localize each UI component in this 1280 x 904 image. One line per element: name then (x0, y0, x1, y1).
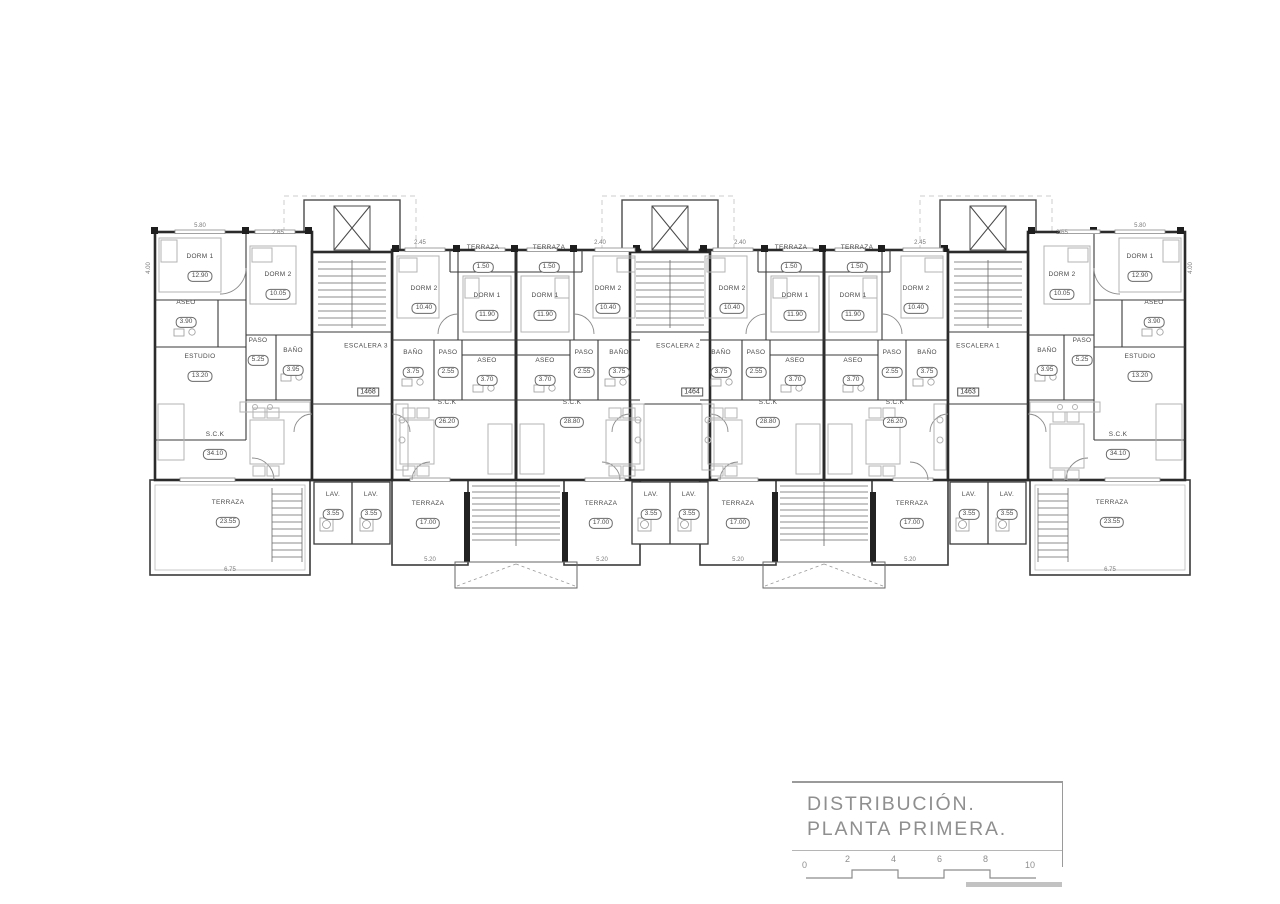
room-label: ASEO3.70 (535, 357, 556, 387)
dimension-label: 5.80 (194, 223, 206, 229)
stair-core-label: ESCALERA 1 (956, 343, 1000, 350)
room-label: DORM 111.90 (531, 292, 558, 322)
room-label: BAÑO3.75 (403, 349, 424, 379)
room-label: DORM 111.90 (473, 292, 500, 322)
floor-plan-drawing (0, 0, 1280, 904)
plan-title-line1: DISTRIBUCIÓN. (807, 792, 1062, 817)
dimension-label: 2.65 (1056, 230, 1068, 236)
scale-tick-label: 2 (845, 854, 850, 864)
room-label: ASEO3.90 (1144, 299, 1165, 329)
room-label: ASEO3.70 (785, 357, 806, 387)
room-label: BAÑO3.75 (711, 349, 732, 379)
dimension-label: 2.45 (914, 240, 926, 246)
room-label: PASO2.55 (438, 349, 459, 379)
room-label: TERRAZA23.55 (212, 499, 244, 529)
room-label: LAV.3.55 (959, 491, 980, 521)
room-label: BAÑO3.75 (917, 349, 938, 379)
unit-number-badge: 1463 (957, 388, 979, 397)
room-label: DORM 111.90 (839, 292, 866, 322)
floor-plan-sheet: DORM 112.90 DORM 210.05 ASEO3.90 PASO5.2… (0, 0, 1280, 904)
room-label: LAV.3.55 (641, 491, 662, 521)
room-label: BAÑO3.95 (1037, 347, 1058, 377)
dimension-label: 2.65 (272, 230, 284, 236)
room-label: S.C.K34.10 (203, 431, 227, 461)
room-label: ESTUDIO13.20 (1125, 353, 1156, 383)
room-label: ASEO3.70 (843, 357, 864, 387)
unit-number-badge: 1468 (357, 388, 379, 397)
room-label: DORM 210.40 (902, 285, 929, 315)
room-label: DORM 210.05 (264, 271, 291, 301)
room-label: S.C.K26.20 (883, 399, 907, 429)
room-label: LAV.3.55 (323, 491, 344, 521)
room-label: PASO2.55 (574, 349, 595, 379)
room-label: S.C.K28.80 (756, 399, 780, 429)
title-block-accent-bar (966, 882, 1062, 887)
dimension-label: 4.00 (1188, 262, 1194, 274)
room-label: TERRAZA1.50 (533, 244, 565, 274)
dimension-label: 2.40 (594, 240, 606, 246)
room-label: TERRAZA17.00 (896, 500, 928, 530)
room-label: PASO5.25 (248, 337, 269, 367)
dimension-label: 5.20 (904, 557, 916, 563)
dimension-label: 2.40 (734, 240, 746, 246)
room-label: S.C.K26.20 (435, 399, 459, 429)
scale-tick-label: 4 (891, 854, 896, 864)
room-label: BAÑO3.95 (283, 347, 304, 377)
room-label: DORM 210.05 (1048, 271, 1075, 301)
room-label: PASO5.25 (1072, 337, 1093, 367)
title-block: DISTRIBUCIÓN. PLANTA PRIMERA. 0 2 4 6 8 … (792, 781, 1063, 867)
unit-number-badge: 1464 (681, 388, 703, 397)
room-label: DORM 112.90 (1126, 253, 1153, 283)
room-label: DORM 111.90 (781, 292, 808, 322)
dimension-label: 2.45 (414, 240, 426, 246)
room-label: ASEO3.90 (176, 299, 197, 329)
dimension-label: 6.75 (224, 567, 236, 573)
stair-core-label: ESCALERA 3 (344, 343, 388, 350)
room-label: LAV.3.55 (361, 491, 382, 521)
stair-core-label: ESCALERA 2 (656, 343, 700, 350)
room-label: PASO2.55 (746, 349, 767, 379)
room-label: BAÑO3.75 (609, 349, 630, 379)
dimension-label: 5.80 (1134, 223, 1146, 229)
room-label: TERRAZA17.00 (722, 500, 754, 530)
room-label: TERRAZA17.00 (585, 500, 617, 530)
dimension-label: 5.20 (596, 557, 608, 563)
room-label: LAV.3.55 (997, 491, 1018, 521)
scale-tick-label: 6 (937, 854, 942, 864)
room-label: DORM 210.40 (594, 285, 621, 315)
room-label: PASO2.55 (882, 349, 903, 379)
room-label: ASEO3.70 (477, 357, 498, 387)
room-label: LAV.3.55 (679, 491, 700, 521)
room-label: ESTUDIO13.20 (185, 353, 216, 383)
room-label: DORM 112.90 (186, 253, 213, 283)
room-label: TERRAZA1.50 (841, 244, 873, 274)
scale-tick-label: 8 (983, 854, 988, 864)
scale-bar: 0 2 4 6 8 10 (792, 851, 1062, 885)
room-label: S.C.K28.80 (560, 399, 584, 429)
title-text: DISTRIBUCIÓN. PLANTA PRIMERA. (792, 783, 1062, 851)
room-label: DORM 210.40 (410, 285, 437, 315)
dimension-label: 5.20 (732, 557, 744, 563)
dimension-label: 6.75 (1104, 567, 1116, 573)
plan-title-line2: PLANTA PRIMERA. (807, 817, 1062, 842)
room-label: TERRAZA17.00 (412, 500, 444, 530)
room-label: DORM 210.40 (718, 285, 745, 315)
room-label: TERRAZA1.50 (467, 244, 499, 274)
dimension-label: 5.20 (424, 557, 436, 563)
room-label: S.C.K34.10 (1106, 431, 1130, 461)
room-label: TERRAZA23.55 (1096, 499, 1128, 529)
room-label: TERRAZA1.50 (775, 244, 807, 274)
dimension-label: 4.00 (146, 262, 152, 274)
scale-bar-line (804, 865, 1044, 881)
